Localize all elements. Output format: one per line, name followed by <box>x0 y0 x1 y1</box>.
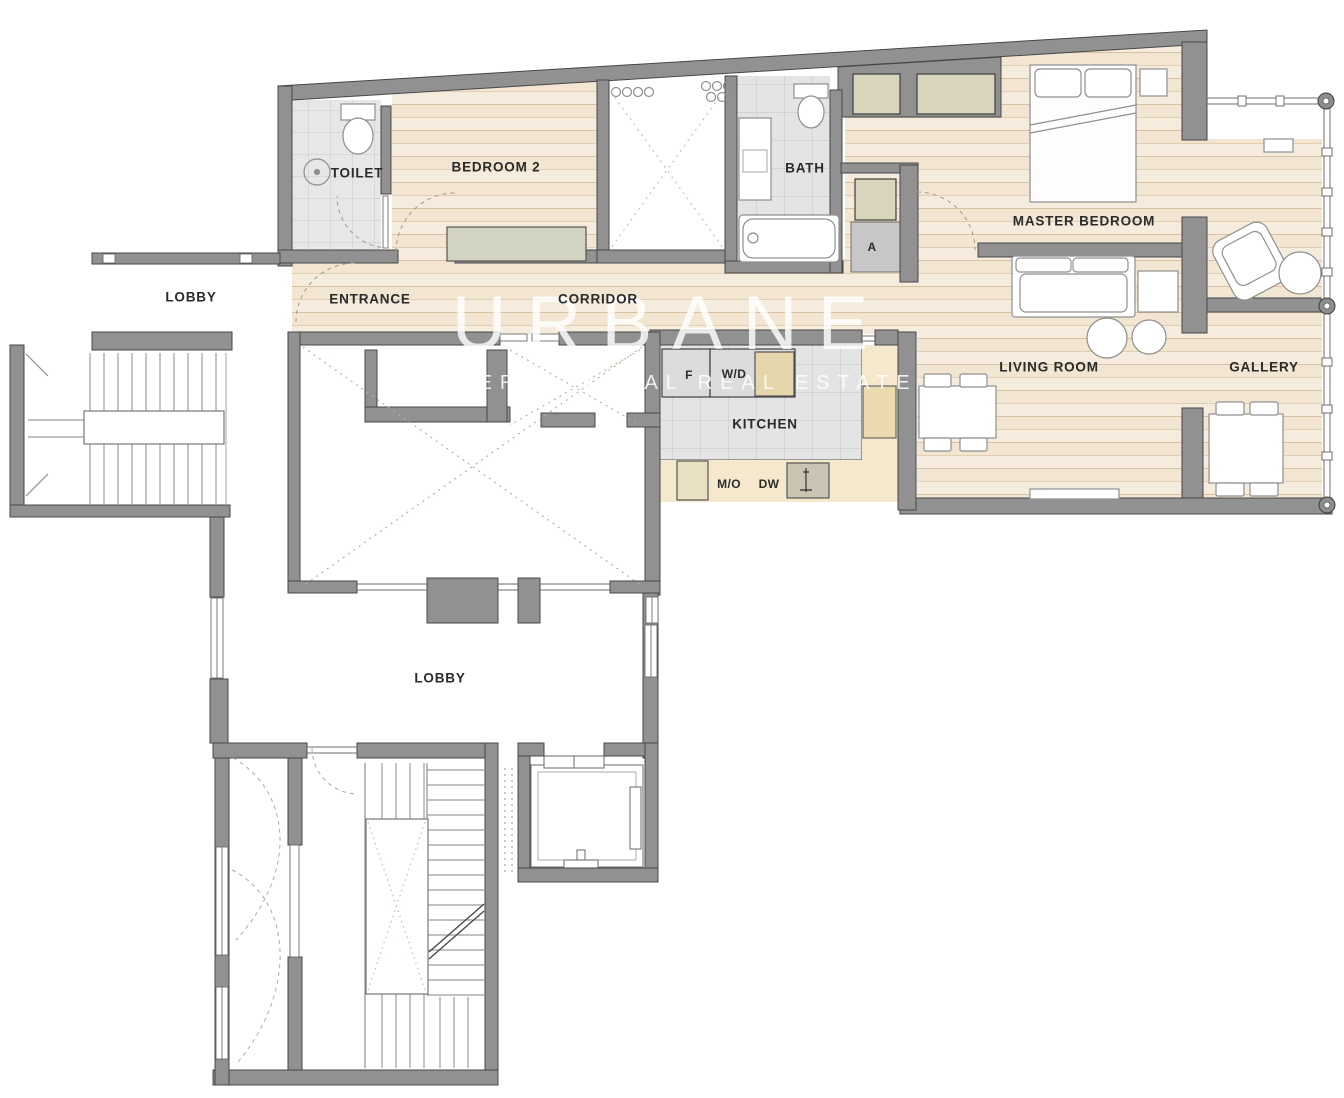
riser-symbols <box>612 82 733 102</box>
tv-bench <box>1030 489 1119 499</box>
room-label-utility: A <box>867 240 876 254</box>
shaft-x <box>611 92 723 248</box>
dining-table <box>919 386 996 438</box>
stairwell-top-left <box>26 353 226 504</box>
chair <box>960 438 987 451</box>
floor-plan-drawing <box>0 0 1344 1098</box>
room-label-kitchen: KITCHEN <box>732 417 798 432</box>
room-label-lobby-upper: LOBBY <box>165 290 216 305</box>
nightstand <box>1140 69 1167 96</box>
chair <box>960 374 987 387</box>
pillow <box>1035 69 1081 97</box>
room-label-lobby-lower: LOBBY <box>414 671 465 686</box>
coffee-table <box>1087 318 1127 358</box>
room-label-bath: BATH <box>785 161 825 176</box>
room-label-toilet: TOILET <box>331 166 384 181</box>
coffee-table <box>1132 320 1166 354</box>
door-sill <box>1264 139 1293 152</box>
round-table <box>1279 252 1321 294</box>
corridor-door-leaf <box>532 334 559 341</box>
room-label-entrance: ENTRANCE <box>329 292 410 307</box>
room-label-master-bedroom: MASTER BEDROOM <box>1013 214 1155 229</box>
appliance-label-fridge: F <box>685 368 693 382</box>
wardrobe <box>917 74 995 114</box>
chair <box>1216 483 1244 496</box>
gallery-table <box>1209 414 1283 483</box>
chair <box>1250 483 1278 496</box>
bath-sink <box>739 118 771 200</box>
appliance-label-washer-dryer: W/D <box>722 367 747 381</box>
chair <box>1216 402 1244 415</box>
chair <box>1250 402 1278 415</box>
room-label-bedroom2: BEDROOM 2 <box>452 160 541 175</box>
cabinet <box>863 386 896 438</box>
shaft-hatch <box>505 768 512 874</box>
room-label-living-room: LIVING ROOM <box>999 360 1099 375</box>
pillow <box>1085 69 1131 97</box>
closet <box>855 179 896 220</box>
side-table <box>1138 271 1178 312</box>
microwave-unit <box>677 461 708 500</box>
toilet-door-leaf <box>383 196 388 248</box>
floor-plan: URBANE INTERNATIONAL REAL ESTATE TOILET … <box>0 0 1344 1098</box>
bathtub <box>739 215 839 262</box>
room-door-leaf <box>290 845 299 957</box>
kitchen-sink <box>787 463 829 498</box>
appliance-label-microwave: M/O <box>717 477 741 491</box>
chair <box>924 374 951 387</box>
room-label-gallery: GALLERY <box>1229 360 1299 375</box>
corridor-door-leaf <box>500 334 527 341</box>
dresser <box>447 227 586 261</box>
void-x <box>303 347 642 586</box>
stairwell-bottom <box>365 763 484 1068</box>
room-label-corridor: CORRIDOR <box>558 292 638 307</box>
appliance-label-dishwasher: DW <box>759 477 780 491</box>
chair <box>924 438 951 451</box>
wardrobe <box>853 74 900 114</box>
